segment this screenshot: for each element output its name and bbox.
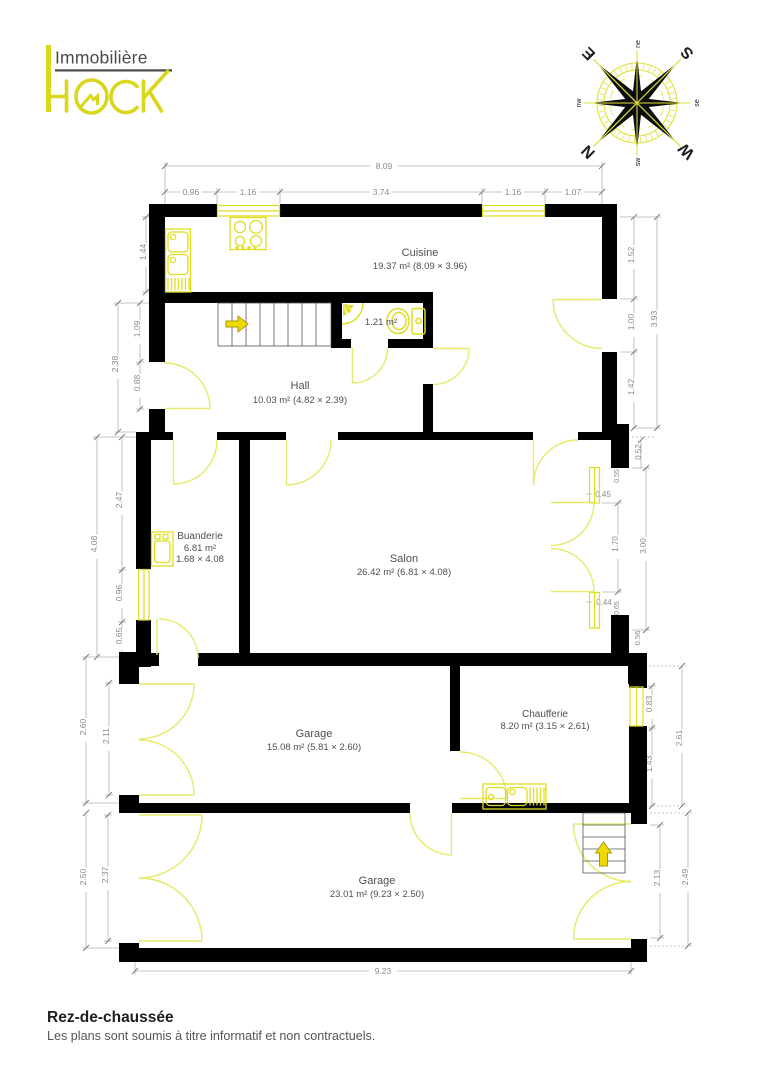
svg-text:19.37 m² (8.09 × 3.96): 19.37 m² (8.09 × 3.96) — [373, 261, 467, 272]
svg-text:1.52: 1.52 — [626, 246, 636, 263]
svg-text:1.16: 1.16 — [240, 187, 257, 197]
svg-text:2.38: 2.38 — [110, 355, 120, 372]
svg-text:2.61: 2.61 — [674, 729, 684, 746]
svg-text:Garage: Garage — [296, 728, 333, 740]
svg-text:Chaufferie: Chaufferie — [522, 709, 568, 720]
svg-text:1.00: 1.00 — [626, 313, 636, 330]
svg-text:15.08 m² (5.81 × 2.60): 15.08 m² (5.81 × 2.60) — [267, 742, 361, 753]
svg-text:2.49: 2.49 — [680, 868, 690, 885]
svg-text:W: W — [675, 139, 698, 162]
svg-text:1.09: 1.09 — [132, 320, 142, 337]
svg-text:0.83: 0.83 — [644, 695, 654, 712]
svg-text:E: E — [579, 43, 599, 63]
svg-text:1.44: 1.44 — [138, 243, 148, 260]
svg-text:1.07: 1.07 — [565, 187, 582, 197]
svg-text:4.08: 4.08 — [89, 535, 99, 552]
svg-text:26.42 m² (6.81 × 4.08): 26.42 m² (6.81 × 4.08) — [357, 567, 451, 578]
svg-text:2.50: 2.50 — [78, 868, 88, 885]
svg-text:0.45: 0.45 — [595, 490, 611, 499]
svg-text:2.11: 2.11 — [101, 728, 111, 744]
svg-text:sw: sw — [635, 157, 642, 167]
svg-text:2.60: 2.60 — [78, 718, 88, 735]
svg-text:Immobilière: Immobilière — [55, 48, 148, 68]
svg-text:1.68 × 4.08: 1.68 × 4.08 — [176, 554, 224, 565]
svg-text:1.42: 1.42 — [626, 378, 636, 395]
svg-text:0.44: 0.44 — [596, 598, 612, 607]
svg-text:2.13: 2.13 — [652, 869, 662, 886]
svg-text:9.23: 9.23 — [375, 966, 392, 976]
svg-text:8.20 m² (3.15 × 2.61): 8.20 m² (3.15 × 2.61) — [501, 721, 590, 732]
svg-text:ne: ne — [635, 40, 642, 48]
svg-text:23.01 m² (9.23 × 2.50): 23.01 m² (9.23 × 2.50) — [330, 889, 424, 900]
svg-text:Les plans sont soumis à titre: Les plans sont soumis à titre informatif… — [47, 1029, 375, 1043]
svg-text:2.37: 2.37 — [100, 866, 110, 883]
svg-text:6.81 m²: 6.81 m² — [184, 543, 216, 554]
svg-text:0.65: 0.65 — [614, 601, 621, 615]
svg-text:2.47: 2.47 — [114, 491, 124, 508]
svg-text:0.96: 0.96 — [114, 584, 124, 601]
svg-text:0.56: 0.56 — [633, 631, 642, 646]
svg-text:0.52: 0.52 — [634, 444, 643, 460]
svg-text:Garage: Garage — [359, 875, 396, 887]
svg-text:3.74: 3.74 — [373, 187, 390, 197]
svg-text:0.55: 0.55 — [614, 469, 621, 483]
svg-text:nw: nw — [576, 98, 583, 108]
svg-text:Buanderie: Buanderie — [177, 531, 223, 542]
svg-text:Cuisine: Cuisine — [402, 247, 439, 259]
svg-text:se: se — [694, 99, 701, 107]
svg-text:8.09: 8.09 — [376, 161, 393, 171]
svg-text:3.00: 3.00 — [639, 538, 648, 554]
svg-text:1.21 m²: 1.21 m² — [365, 317, 397, 328]
svg-text:10.03 m² (4.82 × 2.39): 10.03 m² (4.82 × 2.39) — [253, 395, 347, 406]
svg-text:Rez-de-chaussée: Rez-de-chaussée — [47, 1009, 174, 1026]
svg-text:1.16: 1.16 — [505, 187, 522, 197]
svg-text:3.93: 3.93 — [649, 310, 659, 327]
svg-text:Salon: Salon — [390, 553, 418, 565]
svg-text:Hall: Hall — [291, 380, 310, 392]
svg-text:0.88: 0.88 — [132, 374, 142, 391]
svg-text:0.65: 0.65 — [114, 627, 124, 644]
svg-text:1.70: 1.70 — [611, 536, 620, 552]
svg-text:0.96: 0.96 — [183, 187, 200, 197]
